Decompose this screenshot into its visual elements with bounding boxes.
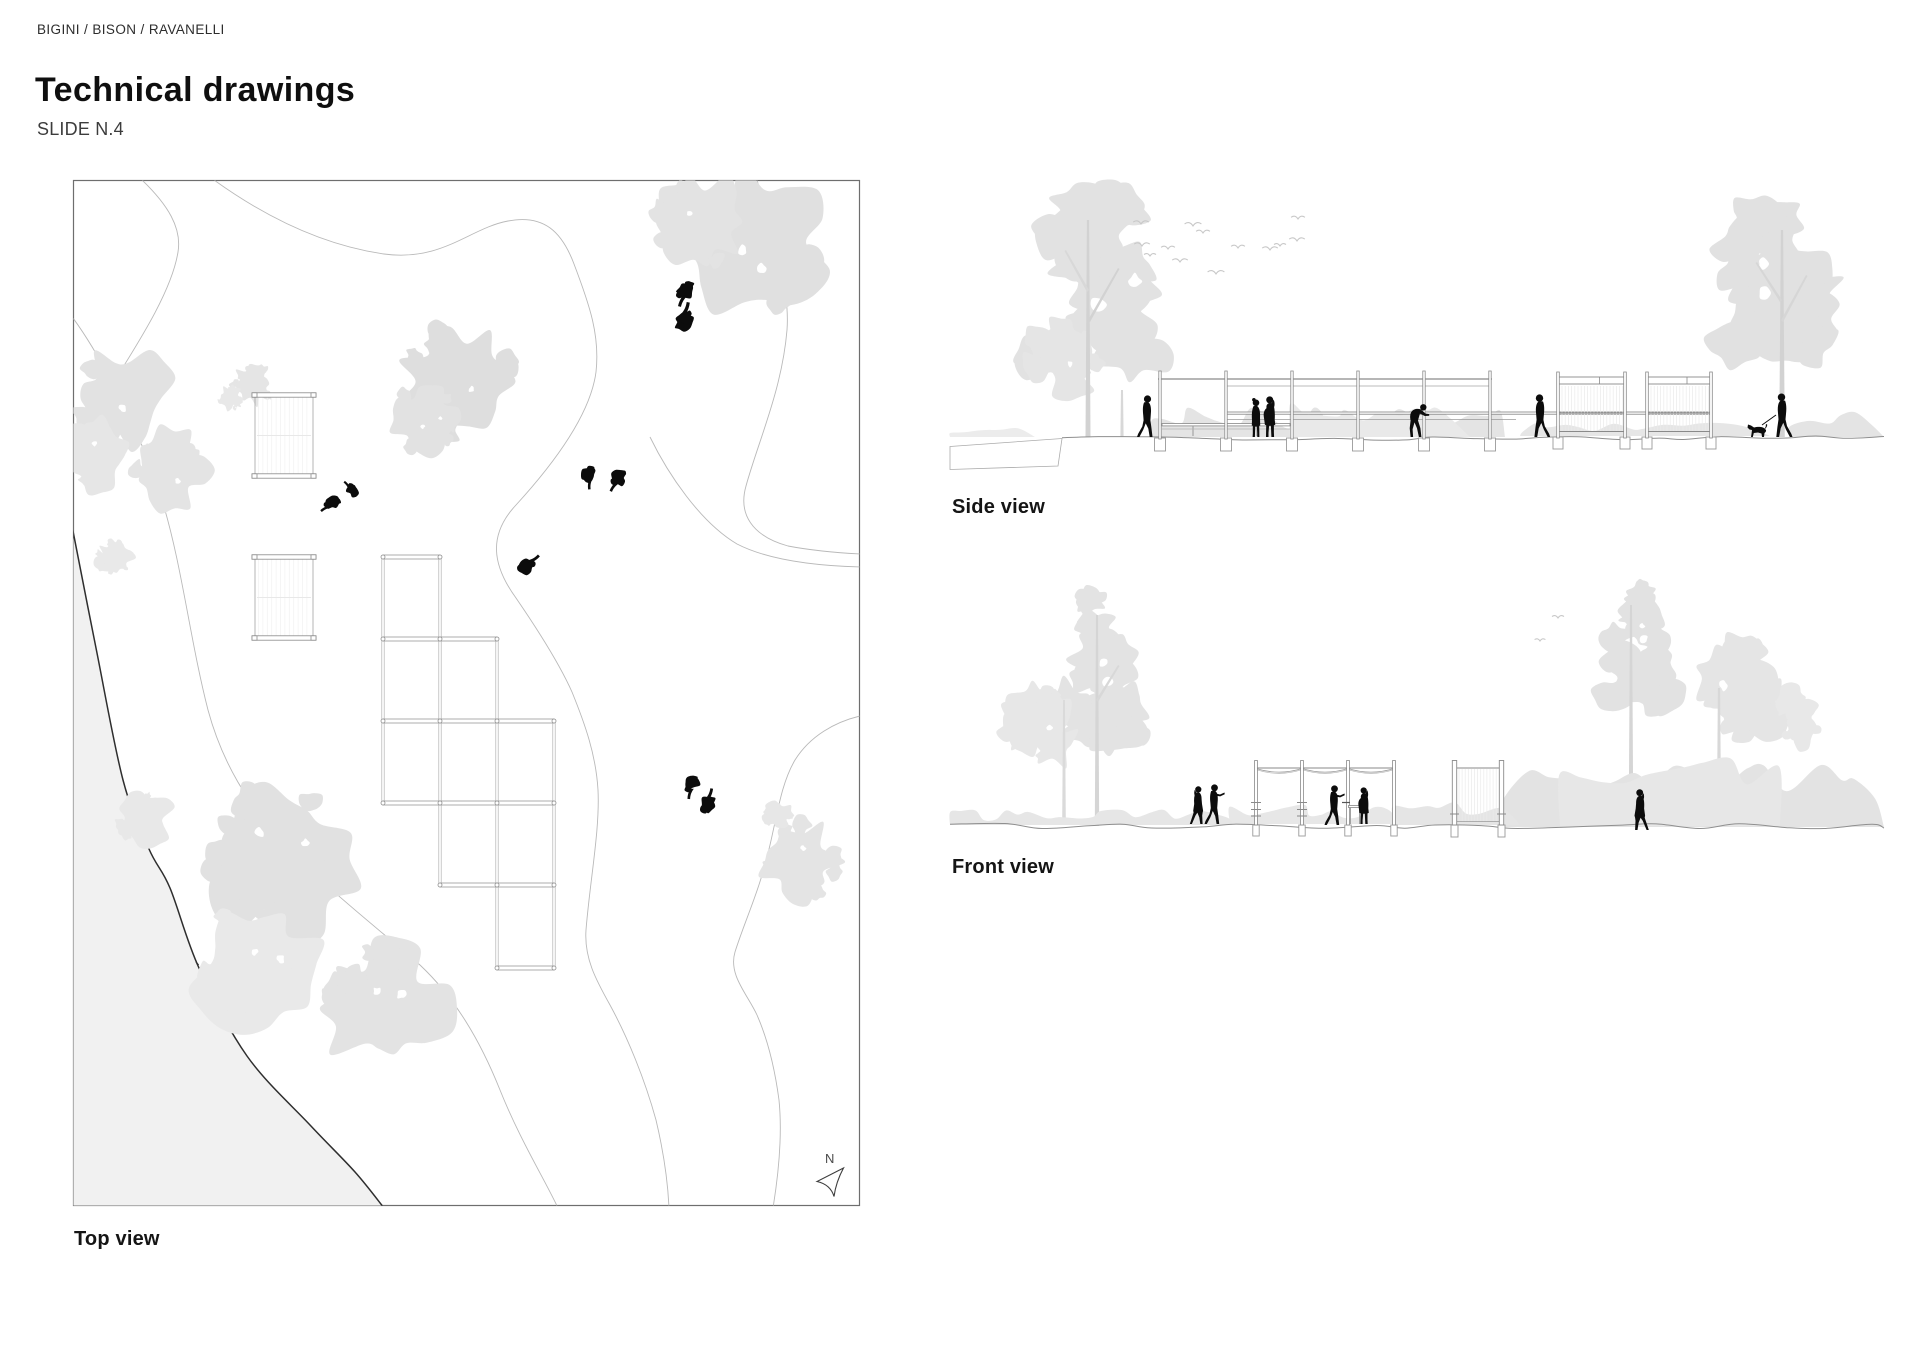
svg-text:N: N	[825, 1151, 834, 1166]
